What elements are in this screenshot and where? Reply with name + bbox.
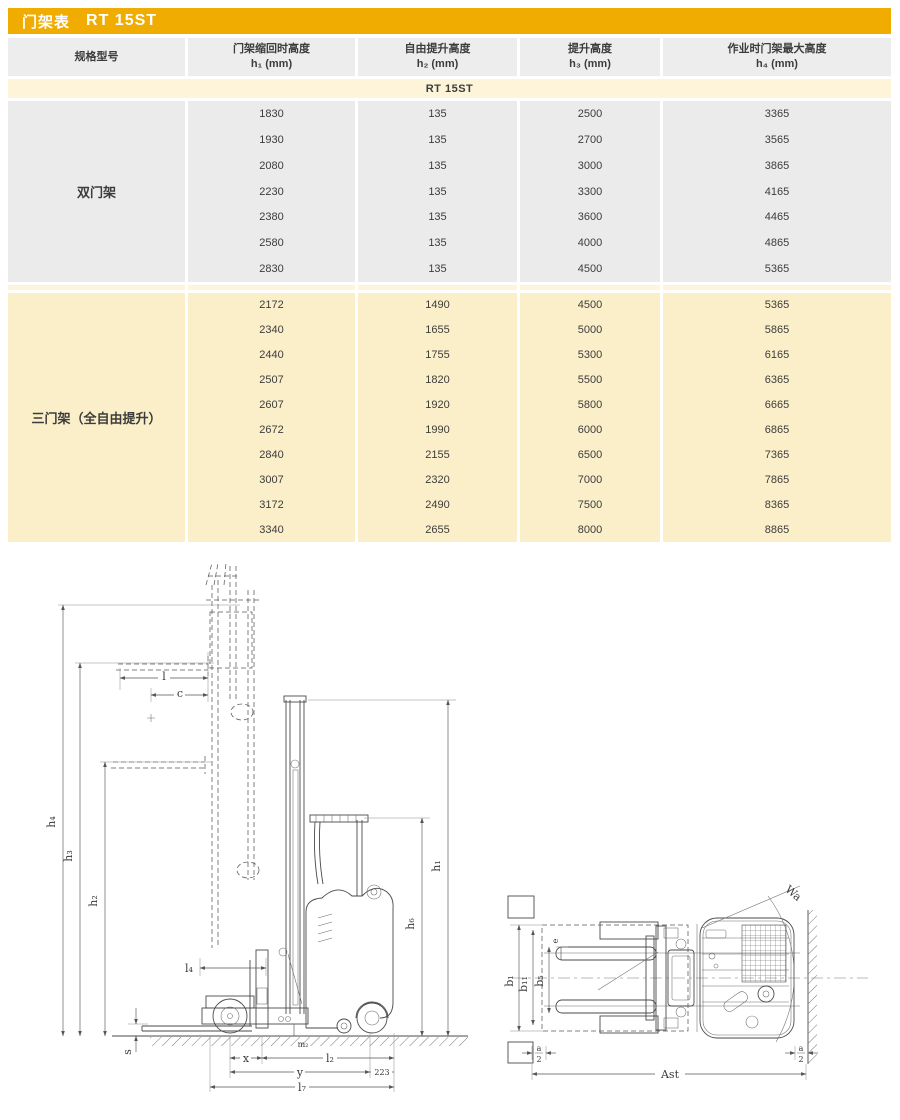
dimension-l4: l₄	[185, 958, 266, 976]
top-view-drawing: Wa b₁ b₁₁ b₅ e Ast	[480, 555, 900, 1120]
dimension-b5: b₅	[533, 947, 549, 1013]
dim-label-h4: h₄	[45, 816, 58, 828]
dim-label-h6: h₆	[404, 918, 417, 930]
value-cell: 7500	[520, 492, 660, 517]
value-cell: 1655	[358, 318, 517, 343]
section-column-3: 3365356538654165446548655365	[663, 101, 891, 282]
catalog-page: 门架表 RT 15ST 规格型号门架缩回时高度h₁ (mm)自由提升高度h₂ (…	[0, 0, 900, 1120]
truck-body	[142, 696, 393, 1033]
value-cell: 135	[358, 230, 517, 256]
value-cell: 4500	[520, 256, 660, 282]
dim-label-l7: l₇	[298, 1081, 307, 1094]
value-cell: 1830	[188, 101, 355, 127]
value-cell: 2607	[188, 393, 355, 418]
value-cell: 2380	[188, 204, 355, 230]
value-cell: 3007	[188, 467, 355, 492]
value-cell: 4500	[520, 293, 660, 318]
dimension-e: e	[551, 938, 568, 960]
dim-label-s: s	[121, 1049, 134, 1055]
value-cell: 2080	[188, 153, 355, 179]
value-cell: 1990	[358, 418, 517, 443]
value-cell: 5000	[520, 318, 660, 343]
value-cell: 4165	[663, 179, 891, 205]
dim-label-b11: b₁₁	[517, 976, 530, 992]
value-cell: 3565	[663, 127, 891, 153]
section-name: 双门架	[8, 101, 185, 282]
dim-label-a-den-left: 2	[536, 1055, 541, 1064]
header-cell-1: 门架缩回时高度h₁ (mm)	[188, 38, 355, 76]
value-cell: 2320	[358, 467, 517, 492]
value-cell: 3600	[520, 204, 660, 230]
value-cell: 3340	[188, 517, 355, 542]
mast-spec-table: 规格型号门架缩回时高度h₁ (mm)自由提升高度h₂ (mm)提升高度h₃ (m…	[8, 38, 891, 542]
dim-label-h2: h₂	[87, 895, 100, 907]
dim-label-a-den-right: 2	[798, 1055, 803, 1064]
model-row: RT 15ST	[8, 79, 891, 98]
value-cell: 135	[358, 153, 517, 179]
dim-label-l4: l₄	[185, 962, 194, 975]
value-cell: 8865	[663, 517, 891, 542]
value-cell: 3000	[520, 153, 660, 179]
dimension-b11: b₁₁	[517, 930, 533, 1025]
value-cell: 1930	[188, 127, 355, 153]
page-title: 门架表	[22, 11, 70, 32]
value-cell: 1755	[358, 343, 517, 368]
value-cell: 2672	[188, 418, 355, 443]
value-cell: 8000	[520, 517, 660, 542]
section-column-3: 5365586561656365666568657365786583658865	[663, 293, 891, 542]
value-cell: 7865	[663, 467, 891, 492]
value-cell: 5365	[663, 293, 891, 318]
value-cell: 135	[358, 101, 517, 127]
value-cell: 6365	[663, 368, 891, 393]
dimension-h2: h₂	[87, 762, 212, 1036]
dim-label-a-num-left: a	[537, 1044, 542, 1053]
dimension-h3: h₃	[62, 663, 214, 1036]
dim-label-b1: b₁	[503, 975, 516, 986]
outrigger-legs-top	[600, 922, 658, 1033]
dim-label-m2: m₂	[298, 1040, 309, 1049]
value-cell: 7365	[663, 442, 891, 467]
header-cell-2: 自由提升高度h₂ (mm)	[358, 38, 517, 76]
dim-label-b5: b₅	[533, 975, 546, 986]
value-cell: 6500	[520, 442, 660, 467]
section-column-2: 2500270030003300360040004500	[520, 101, 660, 282]
dim-label-h1: h₁	[430, 860, 443, 872]
value-cell: 5300	[520, 343, 660, 368]
value-cell: 2440	[188, 343, 355, 368]
dim-label-y: y	[296, 1066, 304, 1079]
value-cell: 2580	[188, 230, 355, 256]
title-bar: 门架表 RT 15ST	[8, 8, 891, 34]
value-cell: 2230	[188, 179, 355, 205]
value-cell: 135	[358, 256, 517, 282]
header-cell-3: 提升高度h₃ (mm)	[520, 38, 660, 76]
section-column-0: 1830193020802230238025802830	[188, 101, 355, 282]
side-view-drawing: h₄ h₃ h₂ h₆ h₁ l	[30, 555, 480, 1120]
value-cell: 4865	[663, 230, 891, 256]
value-cell: 5800	[520, 393, 660, 418]
value-cell: 4465	[663, 204, 891, 230]
dimension-load-center: c	[147, 687, 208, 722]
section-name: 三门架（全自由提升）	[8, 293, 185, 542]
header-cell-4: 作业时门架最大高度h₄ (mm)	[663, 38, 891, 76]
dim-label-l: l	[162, 670, 166, 683]
value-cell: 8365	[663, 492, 891, 517]
dim-label-c: c	[177, 687, 183, 700]
page-title-model: RT 15ST	[86, 12, 157, 30]
value-cell: 2840	[188, 442, 355, 467]
table-body: 双门架1830193020802230238025802830135135135…	[8, 101, 891, 542]
value-cell: 2655	[358, 517, 517, 542]
value-cell: 2340	[188, 318, 355, 343]
value-cell: 135	[358, 179, 517, 205]
value-cell: 3300	[520, 179, 660, 205]
value-cell: 6165	[663, 343, 891, 368]
header-cell-0: 规格型号	[8, 38, 185, 76]
truck-body-top	[697, 918, 794, 1038]
dim-label-223: 223	[374, 1068, 389, 1077]
value-cell: 2500	[520, 101, 660, 127]
value-cell: 6665	[663, 393, 891, 418]
value-cell: 2490	[358, 492, 517, 517]
value-cell: 6000	[520, 418, 660, 443]
section-column-1: 135135135135135135135	[358, 101, 517, 282]
value-cell: 5500	[520, 368, 660, 393]
value-cell: 2155	[358, 442, 517, 467]
section-separator	[8, 285, 891, 290]
value-cell: 7000	[520, 467, 660, 492]
value-cell: 3865	[663, 153, 891, 179]
value-cell: 3172	[188, 492, 355, 517]
dim-label-a-num-right: a	[799, 1044, 804, 1053]
value-cell: 2172	[188, 293, 355, 318]
value-cell: 2830	[188, 256, 355, 282]
dim-label-x: x	[243, 1052, 250, 1065]
dimension-fork-length: l	[120, 652, 208, 702]
value-cell: 1490	[358, 293, 517, 318]
value-cell: 135	[358, 204, 517, 230]
value-cell: 5365	[663, 256, 891, 282]
value-cell: 2507	[188, 368, 355, 393]
value-cell: 1920	[358, 393, 517, 418]
dimension-h1: h₁	[308, 700, 456, 1036]
dimension-a2-left: a 2	[522, 1044, 556, 1064]
dim-label-h3: h₃	[62, 850, 75, 862]
section-column-2: 4500500053005500580060006500700075008000	[520, 293, 660, 542]
table-header-row: 规格型号门架缩回时高度h₁ (mm)自由提升高度h₂ (mm)提升高度h₃ (m…	[8, 38, 891, 76]
section-double-mast: 双门架1830193020802230238025802830135135135…	[8, 101, 891, 282]
value-cell: 5865	[663, 318, 891, 343]
section-column-0: 2172234024402507260726722840300731723340	[188, 293, 355, 542]
value-cell: 1820	[358, 368, 517, 393]
overhead-guard	[310, 815, 368, 896]
value-cell: 135	[358, 127, 517, 153]
value-cell: 2700	[520, 127, 660, 153]
ground	[112, 1036, 468, 1046]
dimension-ast: Ast	[532, 1064, 806, 1081]
dim-label-l2: l₂	[326, 1052, 334, 1065]
dim-label-wa: Wa	[783, 883, 805, 904]
dim-label-ast: Ast	[660, 1068, 680, 1081]
dim-label-e: e	[551, 938, 560, 943]
section-column-1: 1490165517551820192019902155232024902655	[358, 293, 517, 542]
value-cell: 4000	[520, 230, 660, 256]
section-triple-mast: 三门架（全自由提升）217223402440250726072672284030…	[8, 293, 891, 542]
value-cell: 6865	[663, 418, 891, 443]
value-cell: 3365	[663, 101, 891, 127]
